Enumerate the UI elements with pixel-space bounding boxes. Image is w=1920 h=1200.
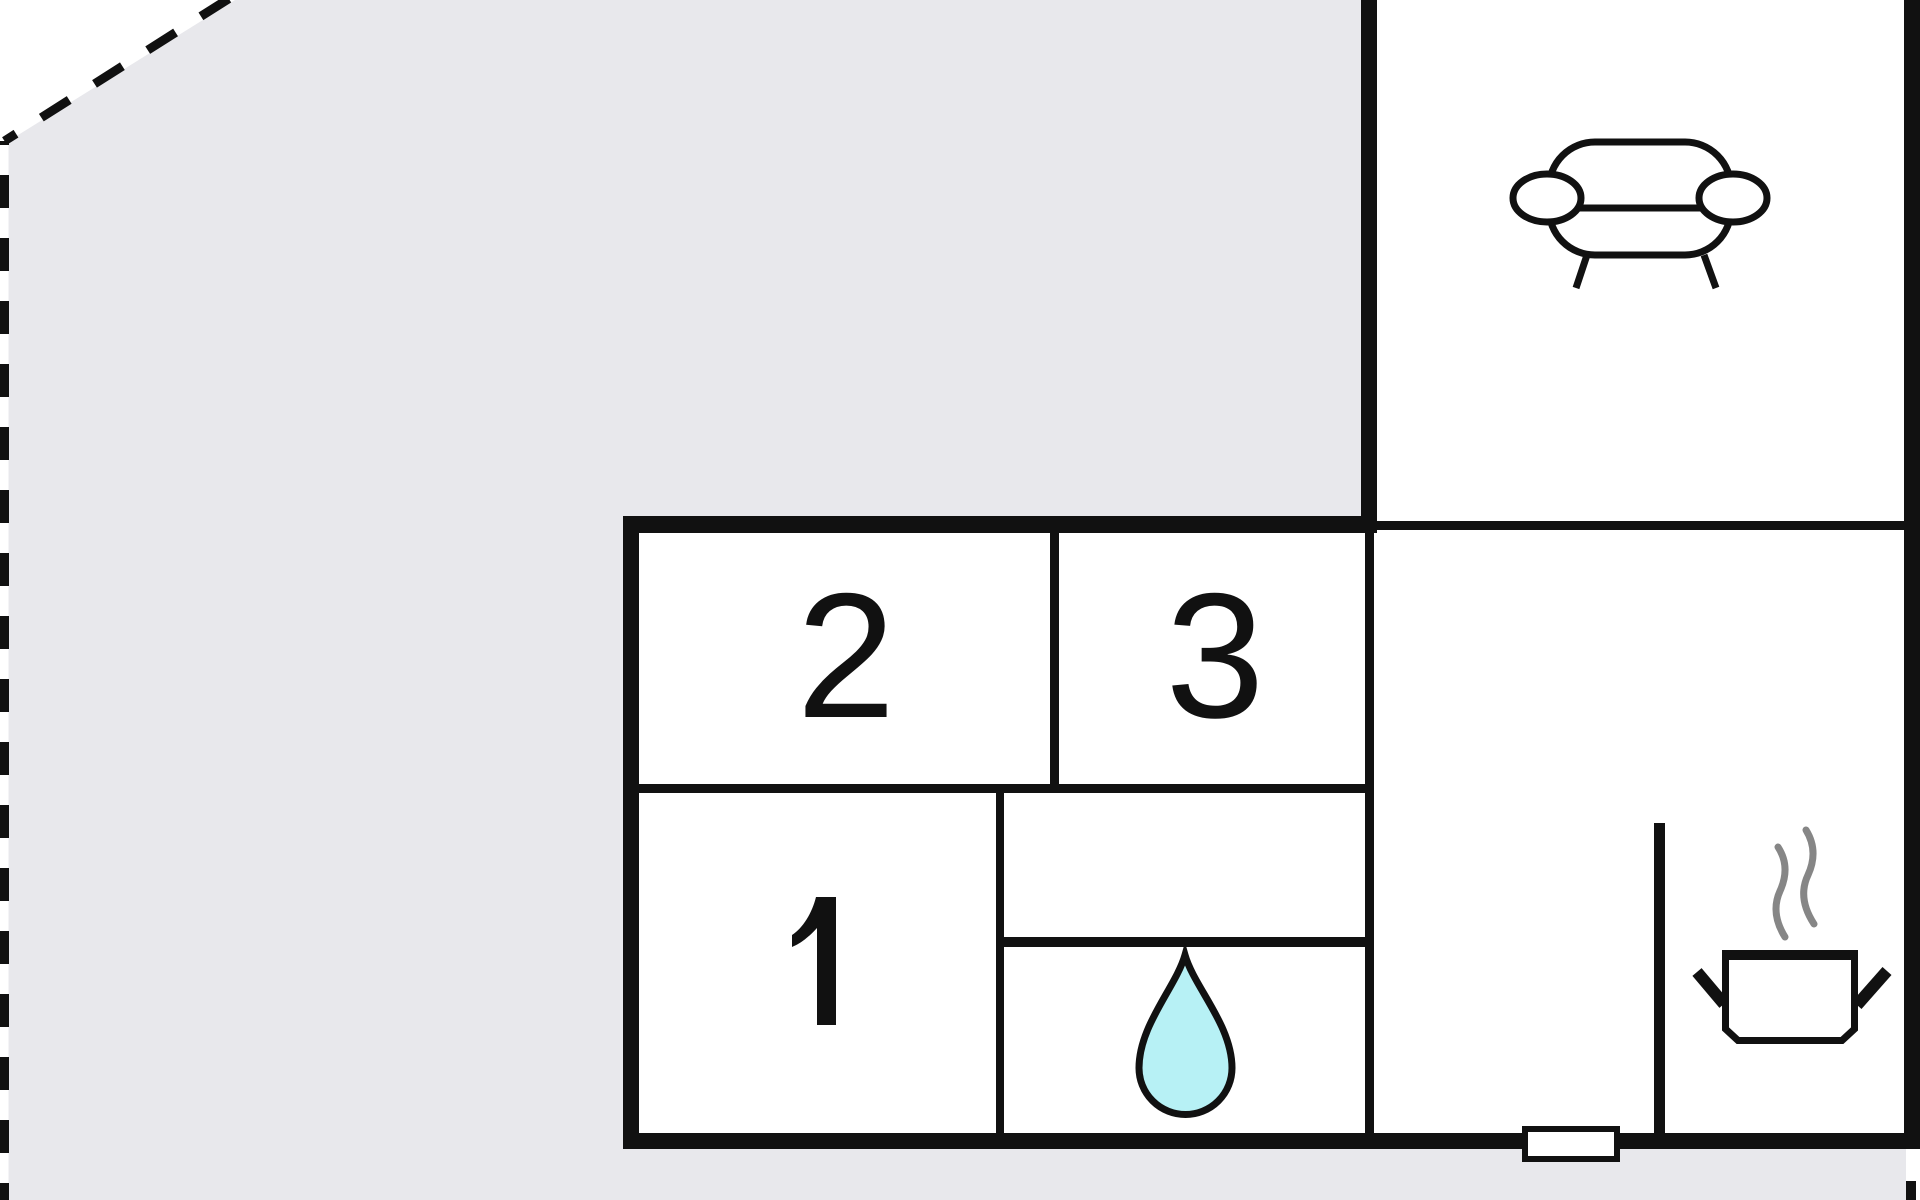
svg-text:2: 2	[797, 556, 896, 755]
svg-text:3: 3	[1166, 556, 1265, 755]
